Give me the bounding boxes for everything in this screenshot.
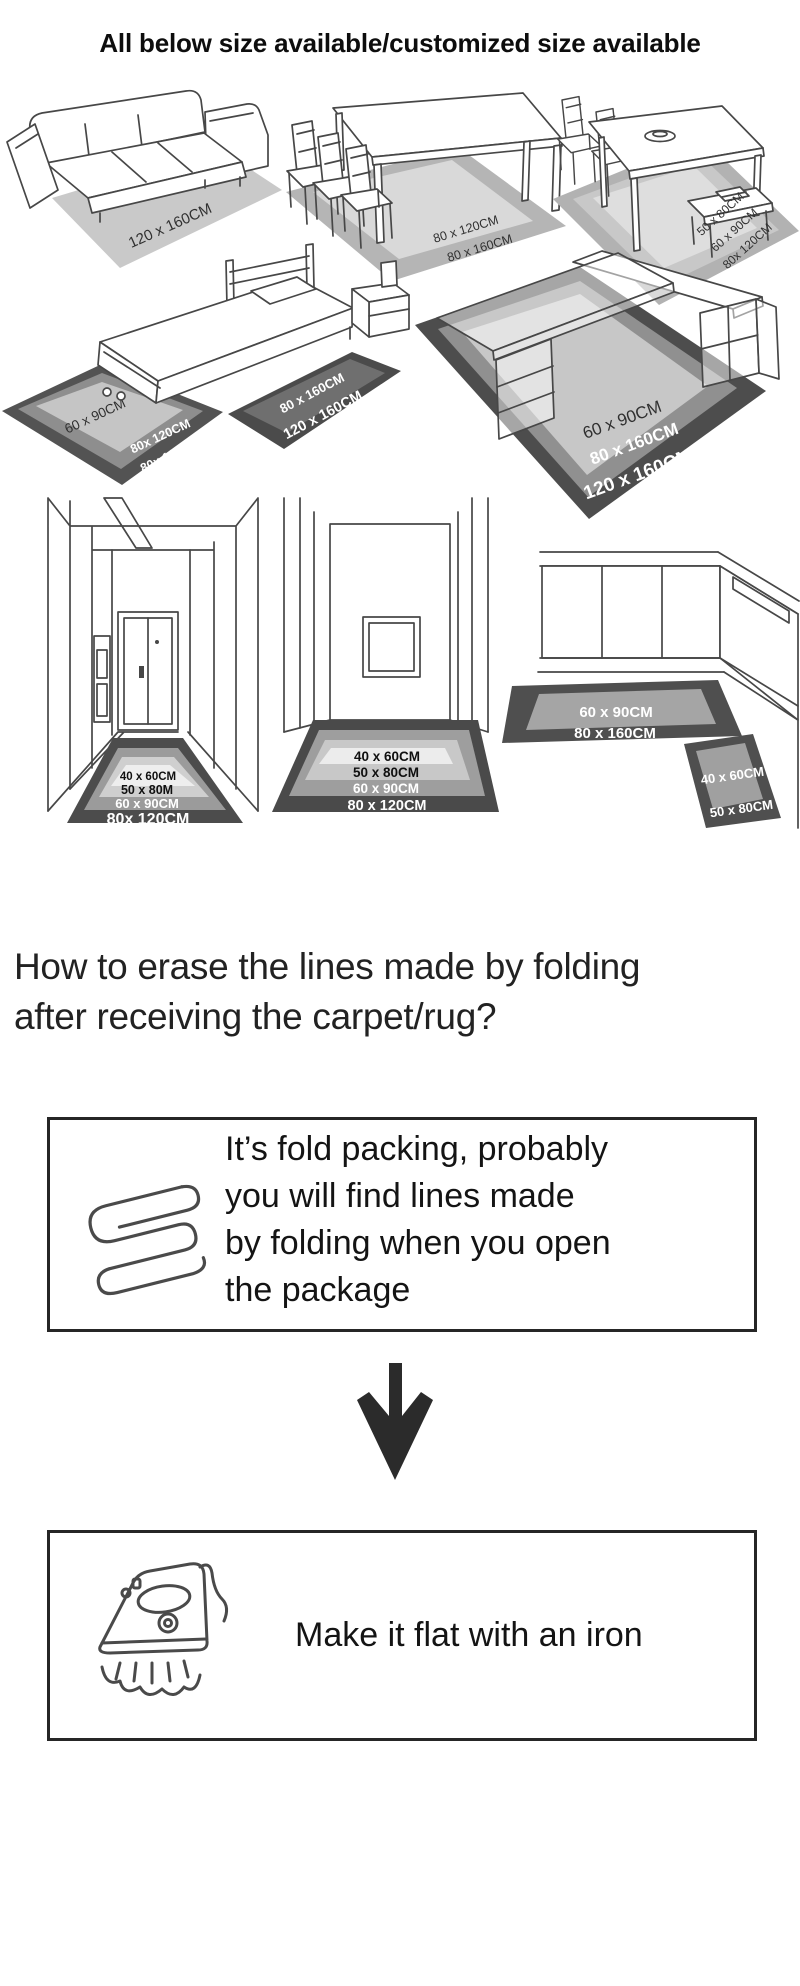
desk-scene: 60 x 90CM 80 x 160CM 120 x 160CM xyxy=(415,251,779,519)
bedroom-scene: 80 x 160CM 120 x 160CM 60 x 90CM 80x 120… xyxy=(2,244,409,485)
fold-note-text: It’s fold packing, probably you will fin… xyxy=(225,1126,611,1314)
question-line-1: How to erase the lines made by folding xyxy=(14,942,640,992)
rug-size-label: 40 x 60CM xyxy=(354,749,420,764)
rug-size-infographic: All below size available/customized size… xyxy=(0,0,800,1986)
rug-size-label: 80 x 120CM xyxy=(348,798,427,814)
down-arrow-icon xyxy=(340,1358,455,1493)
hallway-plain-scene: 40 x 60CM 50 x 80CM 60 x 90CM 80 x 120CM xyxy=(272,498,499,814)
fold-note-line: you will find lines made xyxy=(225,1173,611,1220)
rug-size-label: 80 x 160CM xyxy=(574,725,656,742)
question-line-2: after receiving the carpet/rug? xyxy=(14,992,640,1042)
rug-size-label: 40 x 60CM xyxy=(120,771,176,783)
iron-note-text: Make it flat with an iron xyxy=(295,1533,643,1738)
page-title: All below size available/customized size… xyxy=(0,28,800,59)
rug-size-label: 50 x 80M xyxy=(121,783,173,797)
rug-size-collage: 120 x 160CM 80 x 120CM 80 x 160CM xyxy=(0,80,800,880)
fold-lines-question: How to erase the lines made by folding a… xyxy=(14,942,640,1042)
kitchen-scene: 60 x 90CM 80 x 160CM 40 x 60CM 50 x 80CM xyxy=(502,552,799,828)
hallway-door-scene: 40 x 60CM 50 x 80M 60 x 90CM 80x 120CM xyxy=(48,498,258,828)
fold-note-line: the package xyxy=(225,1267,611,1314)
iron-note: Make it flat with an iron xyxy=(47,1530,757,1741)
living-room-scene: 120 x 160CM xyxy=(7,91,282,268)
rug-size-label: 60 x 90CM xyxy=(115,796,179,811)
rug-size-label: 60 x 90CM xyxy=(579,704,652,721)
iron-icon xyxy=(72,1551,262,1726)
hallway-illustration xyxy=(284,498,488,732)
folded-carpet-icon xyxy=(65,1172,220,1312)
dining-scene-a: 80 x 120CM 80 x 160CM xyxy=(286,93,566,281)
rug-size-label: 80x 120CM xyxy=(107,811,190,828)
rug-size-label: 60 x 90CM xyxy=(353,781,419,796)
fold-packing-note: It’s fold packing, probably you will fin… xyxy=(47,1117,757,1332)
fold-note-line: by folding when you open xyxy=(225,1220,611,1267)
fold-note-line: It’s fold packing, probably xyxy=(225,1126,611,1173)
rug-size-label: 50 x 80CM xyxy=(353,765,419,780)
